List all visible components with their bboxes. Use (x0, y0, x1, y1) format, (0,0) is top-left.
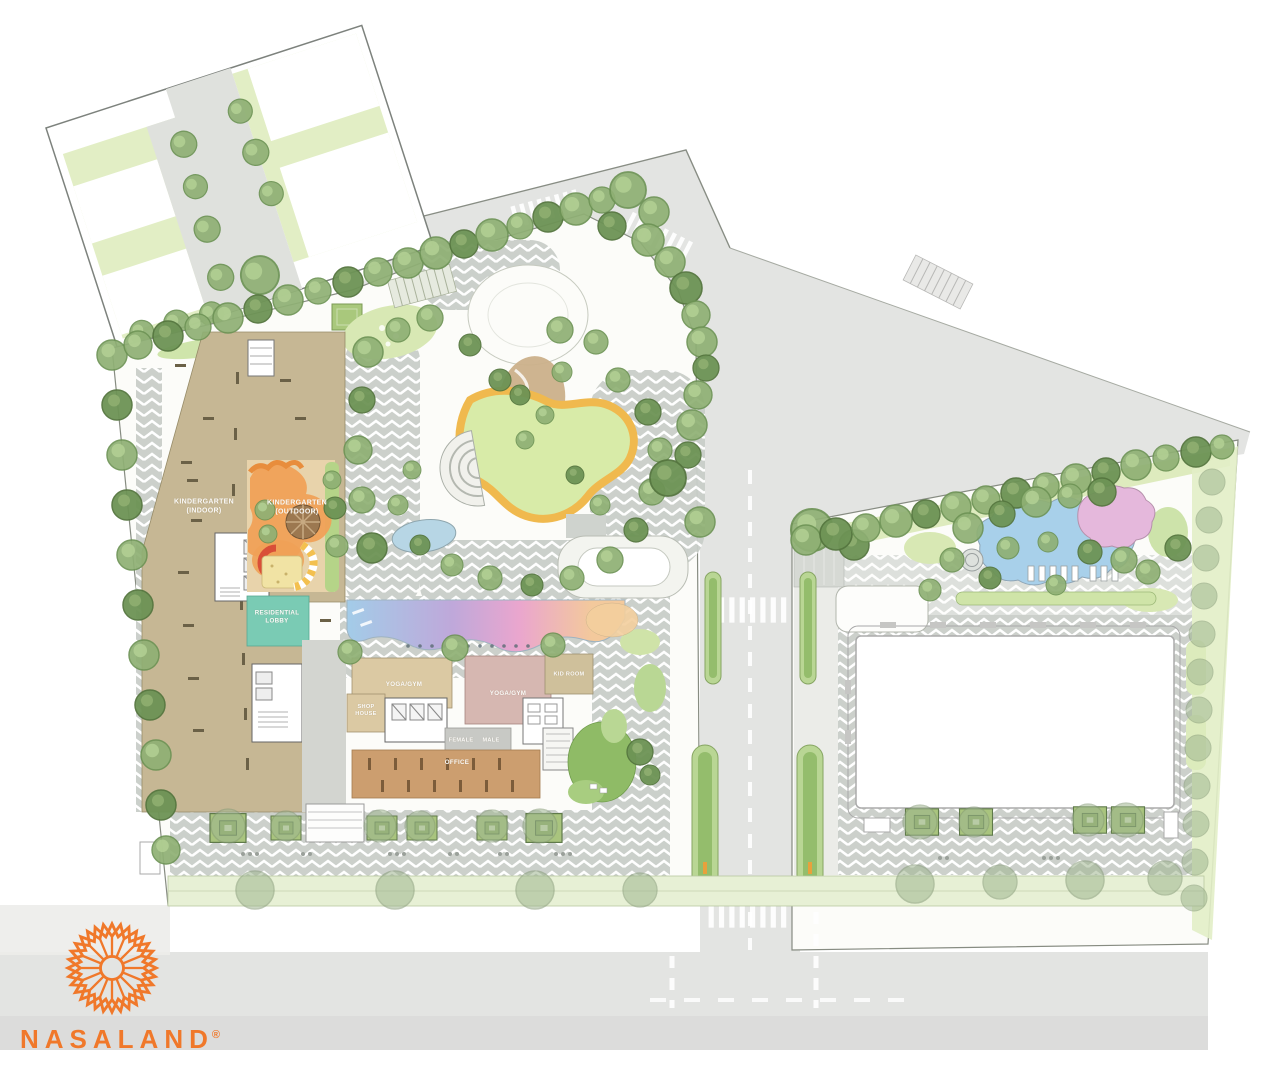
plaza-white (468, 265, 588, 365)
shop-house-building (347, 694, 385, 732)
residential-lobby-building (247, 596, 309, 646)
site-plan-drawing (0, 0, 1280, 1071)
lounge-chairs (1028, 566, 1118, 581)
south-sidewalk (168, 876, 1204, 906)
speed-table (903, 255, 973, 309)
stair-core-north (248, 340, 274, 376)
driveway-court (302, 640, 346, 812)
kid-room-building (545, 654, 593, 694)
elevator-core-amenity (385, 698, 447, 742)
east-tower-building (845, 622, 1180, 818)
site-plan-canvas: KINDERGARTEN (INDOOR) KINDERGARTEN (OUTD… (0, 0, 1280, 1071)
entrance-canopy (306, 804, 364, 842)
elevator-core-south (252, 664, 302, 742)
